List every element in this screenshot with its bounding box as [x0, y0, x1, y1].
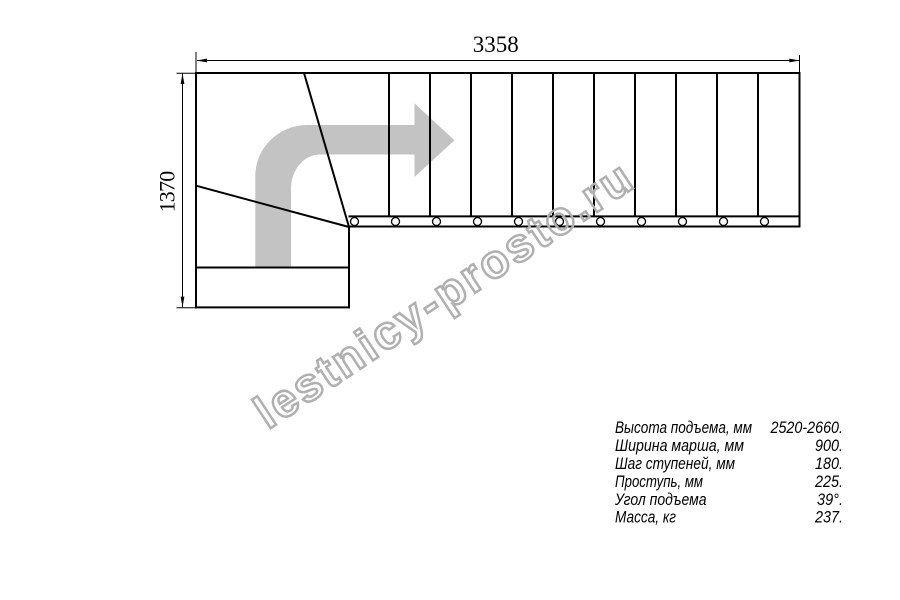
svg-text:225.: 225.: [814, 472, 843, 491]
svg-text:Высота подъема, мм: Высота подъема, мм: [615, 418, 752, 437]
svg-text:1370: 1370: [155, 171, 180, 213]
svg-text:900.: 900.: [815, 436, 843, 455]
svg-text:180.: 180.: [815, 454, 843, 473]
svg-text:3358: 3358: [473, 32, 519, 57]
svg-text:Проступь, мм: Проступь, мм: [615, 472, 703, 491]
svg-text:Ширина марша, мм: Ширина марша, мм: [615, 436, 744, 455]
svg-text:39°.: 39°.: [817, 490, 843, 509]
svg-text:237.: 237.: [814, 508, 843, 527]
svg-text:lestnicy-prosto.ru: lestnicy-prosto.ru: [244, 151, 641, 439]
svg-text:Угол подъема: Угол подъема: [614, 490, 706, 509]
svg-text:Шаг ступеней, мм: Шаг ступеней, мм: [615, 454, 735, 473]
svg-text:Масса, кг: Масса, кг: [615, 508, 676, 527]
svg-text:2520-2660.: 2520-2660.: [770, 418, 843, 437]
